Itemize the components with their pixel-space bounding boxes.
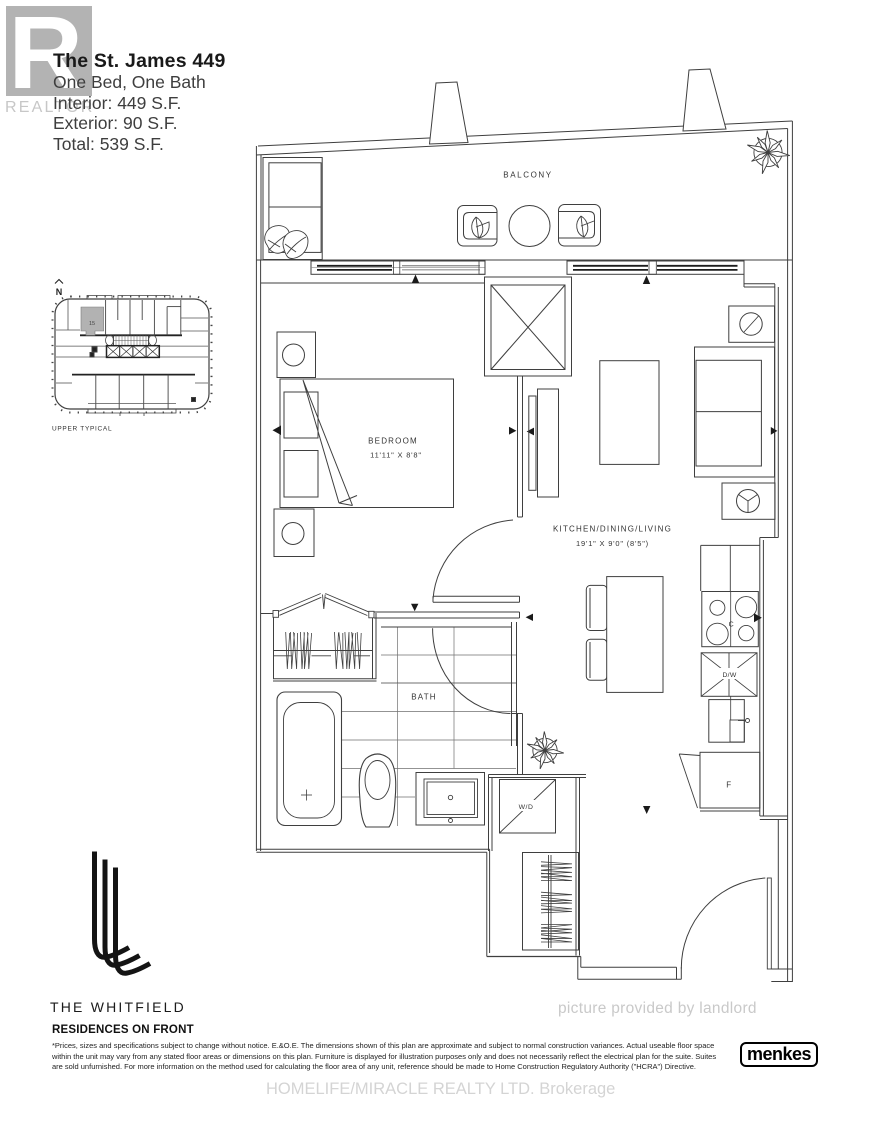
svg-text:F: F (726, 781, 731, 790)
svg-text:11'11" X 8'8": 11'11" X 8'8" (370, 451, 422, 460)
svg-text:BEDROOM: BEDROOM (368, 437, 418, 446)
svg-text:C: C (729, 622, 734, 629)
svg-text:N: N (56, 287, 63, 297)
svg-text:BATH: BATH (411, 693, 437, 702)
svg-text:15: 15 (89, 321, 95, 327)
svg-text:KITCHEN/DINING/LIVING: KITCHEN/DINING/LIVING (553, 525, 672, 534)
svg-text:D/W: D/W (722, 672, 736, 679)
svg-text:W/D: W/D (519, 804, 534, 811)
svg-text:BALCONY: BALCONY (503, 171, 552, 180)
svg-text:19'1" X 9'0" (8'5"): 19'1" X 9'0" (8'5") (576, 539, 649, 548)
svg-text:UPPER TYPICAL: UPPER TYPICAL (52, 426, 112, 433)
